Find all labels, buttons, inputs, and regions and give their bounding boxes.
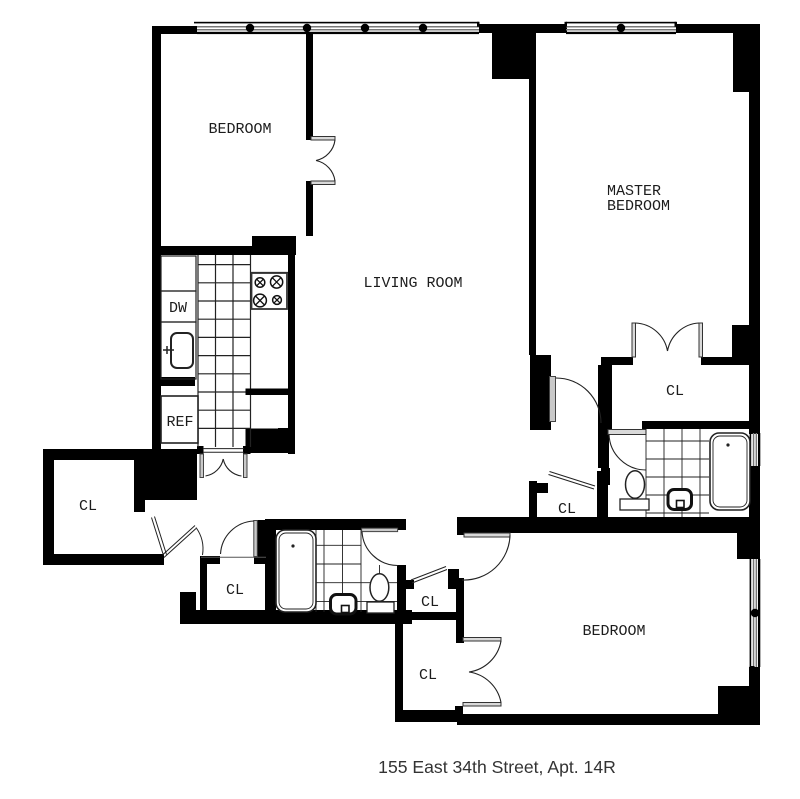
svg-text:BEDROOM: BEDROOM xyxy=(208,121,271,138)
svg-text:CL: CL xyxy=(419,667,437,684)
svg-text:CL: CL xyxy=(666,383,684,400)
svg-text:BEDROOM: BEDROOM xyxy=(607,198,670,215)
svg-text:REF: REF xyxy=(166,414,193,431)
svg-text:LIVING ROOM: LIVING ROOM xyxy=(363,275,462,292)
svg-text:155 East 34th Street, Apt. 14R: 155 East 34th Street, Apt. 14R xyxy=(378,757,616,777)
svg-text:DW: DW xyxy=(169,300,187,317)
svg-text:CL: CL xyxy=(421,594,439,611)
svg-text:BEDROOM: BEDROOM xyxy=(582,623,645,640)
svg-text:CL: CL xyxy=(558,501,576,518)
svg-text:CL: CL xyxy=(79,498,97,515)
svg-text:CL: CL xyxy=(226,582,244,599)
